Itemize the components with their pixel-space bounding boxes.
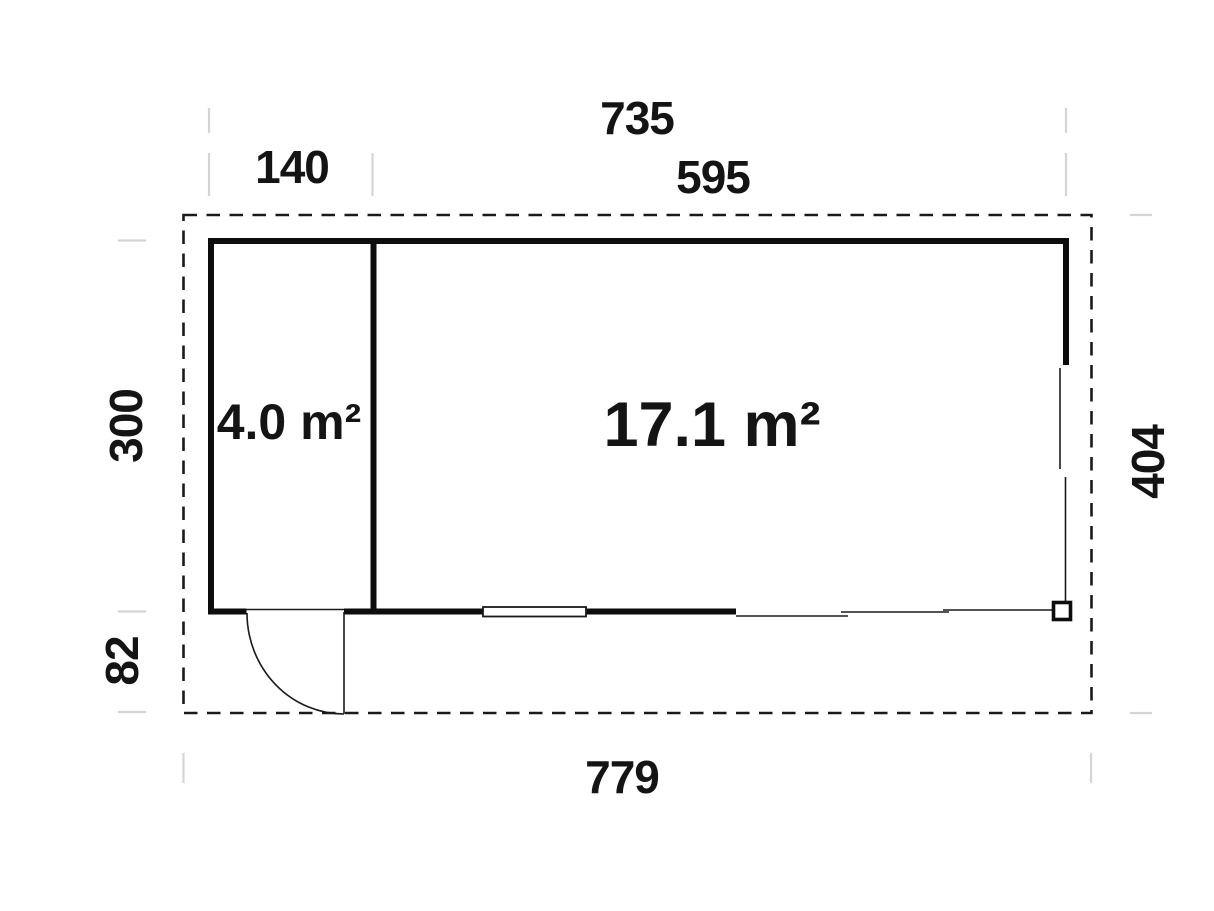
corner-post	[1054, 603, 1071, 620]
door-arc	[247, 613, 344, 714]
dim-top-total: 735	[600, 92, 674, 144]
room-labels: 4.0 m² 17.1 m²	[217, 390, 821, 460]
dim-left-upper-height: 300	[100, 389, 152, 463]
dim-top-left-section: 140	[255, 141, 329, 193]
dim-right-height: 404	[1122, 424, 1174, 499]
dim-top-right-section: 595	[676, 151, 750, 203]
floor-plan-canvas: 735 140 595 300 82 404 779 4.0 m² 17.1 m…	[0, 0, 1214, 911]
floor-plan-page: 735 140 595 300 82 404 779 4.0 m² 17.1 m…	[0, 0, 1214, 911]
room-area-main-room: 17.1 m²	[603, 390, 820, 460]
glazed-front-edge	[736, 610, 1054, 616]
dim-left-lower-height: 82	[96, 636, 148, 685]
dashed-roof-outline	[184, 215, 1092, 713]
door-swing	[246, 610, 344, 715]
glazed-right-edge	[1060, 368, 1066, 603]
window	[483, 607, 586, 617]
room-area-side-room: 4.0 m²	[217, 394, 362, 450]
dim-bottom-total: 779	[585, 751, 659, 803]
